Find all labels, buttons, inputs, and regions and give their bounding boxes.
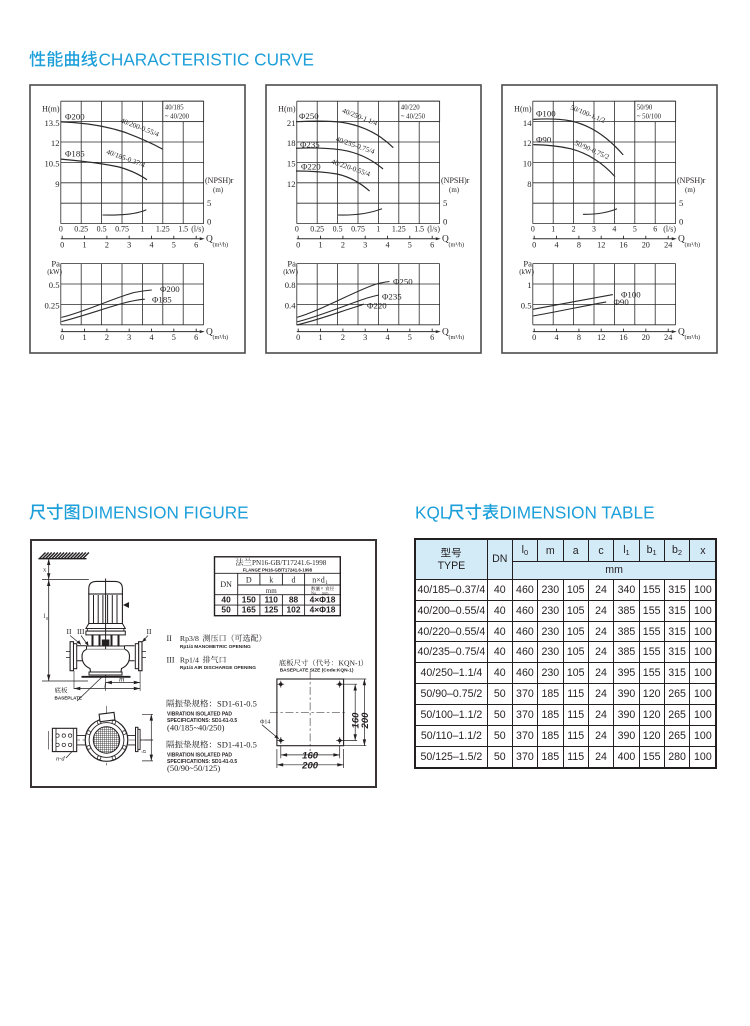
- svg-text:3: 3: [127, 240, 131, 249]
- svg-text:9: 9: [55, 179, 59, 189]
- svg-text:1: 1: [325, 580, 328, 586]
- svg-text:5: 5: [172, 333, 176, 342]
- svg-text:0: 0: [296, 333, 300, 342]
- svg-text:d: d: [292, 575, 296, 584]
- svg-text:H(m): H(m): [42, 104, 60, 113]
- svg-text:50/90: 50/90: [637, 104, 653, 111]
- svg-text:KQL: KQL: [415, 502, 449, 522]
- svg-text:24: 24: [664, 333, 672, 342]
- svg-text:1.25: 1.25: [392, 225, 406, 234]
- svg-text:0: 0: [59, 225, 63, 234]
- svg-text:1.5: 1.5: [178, 225, 188, 234]
- svg-text:14: 14: [523, 118, 532, 128]
- svg-text:(m): (m): [685, 186, 696, 194]
- svg-text:Φ100: Φ100: [536, 109, 556, 119]
- svg-text:H(m): H(m): [514, 104, 532, 113]
- svg-text:4: 4: [612, 225, 616, 234]
- svg-text:12: 12: [597, 333, 605, 342]
- svg-text:4: 4: [385, 240, 389, 249]
- svg-text:150: 150: [242, 594, 256, 604]
- svg-text:Φ185: Φ185: [152, 294, 172, 304]
- svg-text:H(m): H(m): [278, 104, 296, 113]
- svg-text:0: 0: [443, 216, 447, 226]
- svg-text:(kW): (kW): [283, 268, 298, 276]
- svg-text:5: 5: [408, 240, 412, 249]
- svg-text:0: 0: [532, 240, 536, 249]
- svg-text:(m³/h): (m³/h): [213, 334, 229, 341]
- svg-text:D: D: [246, 575, 252, 584]
- svg-text:(kW): (kW): [47, 268, 62, 276]
- svg-text:8: 8: [577, 240, 581, 249]
- svg-text:DIMENSION FIGURE: DIMENSION FIGURE: [82, 502, 249, 522]
- svg-text:(m³/h): (m³/h): [449, 334, 465, 341]
- svg-text:3: 3: [363, 333, 367, 342]
- svg-text:0.5: 0.5: [333, 225, 343, 234]
- svg-text:125: 125: [264, 605, 278, 615]
- svg-text:0.25: 0.25: [310, 225, 324, 234]
- svg-text:20: 20: [642, 333, 650, 342]
- svg-text:0.25: 0.25: [44, 301, 59, 311]
- svg-text:Φ250: Φ250: [299, 111, 319, 121]
- svg-text:Pa: Pa: [287, 258, 296, 268]
- svg-text:1: 1: [82, 240, 86, 249]
- svg-text:0: 0: [531, 225, 535, 234]
- svg-text:6: 6: [430, 240, 434, 249]
- svg-text:1: 1: [318, 240, 322, 249]
- svg-text:1: 1: [527, 280, 531, 290]
- svg-text:Φ200: Φ200: [65, 112, 85, 122]
- svg-text:Pa: Pa: [51, 258, 60, 268]
- svg-text:Rp3/8: Rp3/8: [180, 634, 199, 643]
- svg-text:0.5: 0.5: [49, 280, 60, 290]
- svg-text:CHARACTERISTIC CURVE: CHARACTERISTIC CURVE: [99, 49, 315, 69]
- svg-text:2: 2: [105, 333, 109, 342]
- svg-text:Φ90: Φ90: [536, 135, 552, 145]
- svg-text:1: 1: [318, 333, 322, 342]
- svg-text:0: 0: [296, 240, 300, 249]
- svg-text:102: 102: [287, 605, 301, 615]
- svg-text:12: 12: [523, 138, 532, 148]
- svg-text:2: 2: [572, 225, 576, 234]
- svg-text:Φ220: Φ220: [367, 301, 387, 311]
- svg-text:4×Φ18: 4×Φ18: [310, 605, 336, 615]
- svg-text:Φ185: Φ185: [65, 149, 85, 159]
- svg-text:BASEPLATE SIZE (Code:KQN-1): BASEPLATE SIZE (Code:KQN-1): [280, 668, 354, 674]
- svg-text:5: 5: [443, 198, 447, 208]
- svg-text:Φ235: Φ235: [300, 140, 320, 150]
- svg-text:12: 12: [597, 240, 605, 249]
- svg-text:0: 0: [60, 333, 64, 342]
- svg-text:Φ90: Φ90: [614, 297, 630, 307]
- svg-text:4: 4: [554, 240, 558, 249]
- svg-text:(l/s): (l/s): [663, 225, 676, 234]
- svg-text:1: 1: [376, 225, 380, 234]
- svg-text:1: 1: [82, 333, 86, 342]
- svg-text:8: 8: [527, 179, 531, 189]
- svg-text:40: 40: [221, 594, 231, 604]
- svg-text:3: 3: [127, 333, 131, 342]
- svg-text:II: II: [167, 634, 173, 643]
- svg-text:12: 12: [287, 179, 296, 189]
- svg-text:18: 18: [287, 138, 296, 148]
- svg-text:Rp1/4 MANOMETRIC OPENING: Rp1/4 MANOMETRIC OPENING: [180, 644, 251, 650]
- svg-text:6: 6: [194, 240, 198, 249]
- svg-text:6: 6: [653, 225, 657, 234]
- svg-text:0.75: 0.75: [351, 225, 365, 234]
- svg-text:~ 40/200: ~ 40/200: [165, 114, 190, 121]
- svg-text:6: 6: [194, 333, 198, 342]
- svg-text:200: 200: [301, 760, 319, 771]
- svg-text:4: 4: [554, 333, 558, 342]
- svg-text:4: 4: [149, 333, 153, 342]
- svg-text:~ 50/100: ~ 50/100: [637, 114, 662, 121]
- svg-text:II: II: [67, 627, 72, 636]
- svg-text:165: 165: [242, 605, 256, 615]
- svg-text:III: III: [77, 627, 85, 636]
- svg-text:(m³/h): (m³/h): [685, 334, 701, 341]
- svg-text:50: 50: [221, 605, 231, 615]
- svg-text:13.5: 13.5: [44, 118, 59, 128]
- svg-text:(kW): (kW): [519, 268, 534, 276]
- svg-text:0.5: 0.5: [97, 225, 107, 234]
- svg-text:3: 3: [592, 225, 596, 234]
- svg-text:1: 1: [551, 225, 555, 234]
- svg-text:VIBRATION ISOLATED PAD: VIBRATION ISOLATED PAD: [167, 712, 232, 718]
- svg-text:b: b: [142, 750, 148, 753]
- svg-text:0.4: 0.4: [285, 301, 296, 311]
- svg-text:(l/s): (l/s): [427, 225, 440, 234]
- svg-text:2: 2: [341, 333, 345, 342]
- svg-text:k: k: [269, 575, 273, 584]
- svg-text:0.5: 0.5: [521, 301, 532, 311]
- svg-text:(m³/h): (m³/h): [449, 241, 465, 248]
- svg-text:Rp1/4: Rp1/4: [180, 656, 199, 665]
- svg-text:SD1-61-0.5: SD1-61-0.5: [217, 699, 257, 709]
- svg-text:0.25: 0.25: [74, 225, 88, 234]
- svg-text:5: 5: [633, 225, 637, 234]
- svg-text:4: 4: [385, 333, 389, 342]
- svg-text:DIMENSION TABLE: DIMENSION TABLE: [500, 502, 655, 522]
- svg-text:VIBRATION ISOLATED PAD: VIBRATION ISOLATED PAD: [167, 753, 232, 759]
- svg-text:SD1-41-0.5: SD1-41-0.5: [217, 740, 257, 750]
- svg-text:88: 88: [289, 594, 299, 604]
- svg-text:(m³/h): (m³/h): [213, 241, 229, 248]
- svg-text:0: 0: [60, 240, 64, 249]
- svg-text:4: 4: [149, 240, 153, 249]
- svg-text:(40/185~40/250): (40/185~40/250): [167, 723, 225, 733]
- svg-text:Φ220: Φ220: [301, 161, 321, 171]
- svg-text:PN16-GB/T17241.6-1998: PN16-GB/T17241.6-1998: [252, 559, 327, 567]
- svg-text:5: 5: [679, 198, 683, 208]
- svg-text:12: 12: [51, 138, 60, 148]
- svg-text:Φ200: Φ200: [160, 284, 180, 294]
- svg-text:200: 200: [360, 712, 371, 730]
- svg-text:Φ14: Φ14: [260, 719, 270, 725]
- svg-text:6: 6: [430, 333, 434, 342]
- svg-text:(l/s): (l/s): [191, 225, 204, 234]
- svg-text:110: 110: [264, 594, 278, 604]
- svg-text:5: 5: [207, 198, 211, 208]
- svg-text:10: 10: [523, 159, 532, 169]
- svg-text:II: II: [147, 627, 152, 636]
- svg-text:20: 20: [642, 240, 650, 249]
- svg-text:Pa: Pa: [523, 258, 532, 268]
- svg-text:0: 0: [207, 216, 211, 226]
- svg-text:~ 40/250: ~ 40/250: [401, 114, 426, 121]
- svg-text:4×Φ18: 4×Φ18: [310, 594, 336, 604]
- svg-text:24: 24: [664, 240, 672, 249]
- svg-text:15: 15: [287, 159, 296, 169]
- svg-text:Φ250: Φ250: [393, 277, 413, 287]
- svg-text:l: l: [104, 681, 106, 690]
- svg-text:n×d: n×d: [312, 575, 325, 584]
- svg-text:40/220: 40/220: [401, 104, 420, 111]
- svg-text:FLANGE PN16-GB/T17241.6-1998: FLANGE PN16-GB/T17241.6-1998: [243, 568, 313, 573]
- svg-text:21: 21: [287, 118, 296, 128]
- svg-text:16: 16: [619, 333, 627, 342]
- svg-text:(NPSH)r: (NPSH)r: [441, 176, 470, 185]
- svg-text:Rp1/4 AIR DISCHARGE OPENING: Rp1/4 AIR DISCHARGE OPENING: [180, 665, 256, 671]
- svg-text:0: 0: [532, 333, 536, 342]
- svg-text:0.8: 0.8: [285, 280, 296, 290]
- svg-text:m: m: [119, 675, 125, 684]
- svg-text:0.75: 0.75: [115, 225, 129, 234]
- svg-text:5: 5: [408, 333, 412, 342]
- svg-text:(NPSH)r: (NPSH)r: [677, 176, 706, 185]
- svg-text:10.5: 10.5: [44, 159, 59, 169]
- svg-text:1.5: 1.5: [414, 225, 424, 234]
- svg-text:16: 16: [619, 240, 627, 249]
- svg-text:0: 0: [295, 225, 299, 234]
- svg-text:8: 8: [577, 333, 581, 342]
- svg-text:40/185: 40/185: [165, 104, 184, 111]
- svg-text:(m³/h): (m³/h): [685, 241, 701, 248]
- svg-text:2: 2: [341, 240, 345, 249]
- svg-text:(NPSH)r: (NPSH)r: [205, 176, 234, 185]
- svg-text:(50/90~50/125): (50/90~50/125): [167, 763, 220, 773]
- svg-text:1.25: 1.25: [156, 225, 170, 234]
- svg-text:0: 0: [679, 216, 683, 226]
- svg-text:(m): (m): [449, 186, 460, 194]
- svg-text:1: 1: [140, 225, 144, 234]
- svg-text:3: 3: [363, 240, 367, 249]
- svg-text:2: 2: [105, 240, 109, 249]
- svg-text:KQN-1: KQN-1: [339, 659, 362, 668]
- svg-text:n-d: n-d: [56, 756, 65, 763]
- svg-text:5: 5: [172, 240, 176, 249]
- svg-text:(m): (m): [213, 186, 224, 194]
- svg-text:III: III: [167, 656, 175, 665]
- svg-text:DN: DN: [220, 580, 232, 589]
